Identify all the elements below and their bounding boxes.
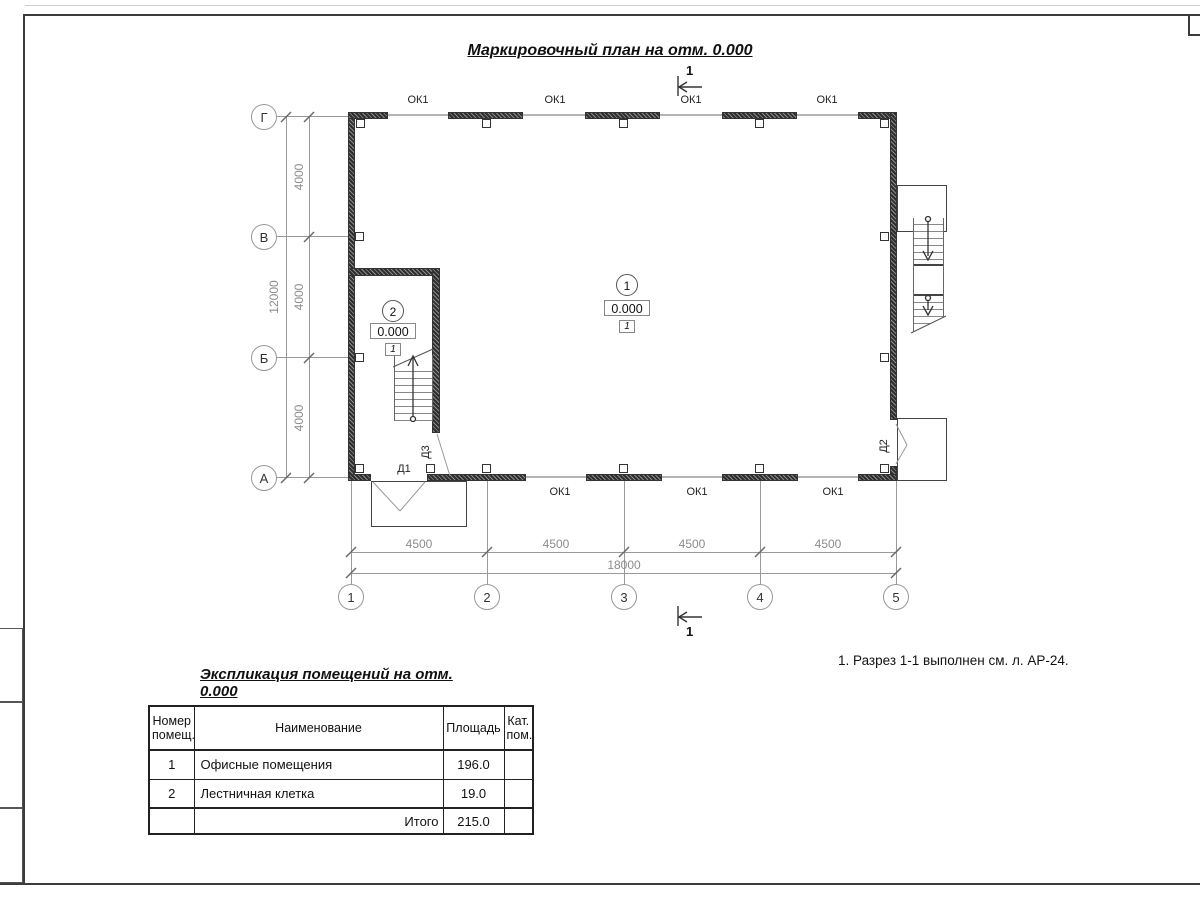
drawing-sheet: Маркировочный план на отм. 0.000 Г В Б А…: [0, 0, 1200, 900]
column-tab: [482, 464, 491, 473]
section-mark-number-top: 1: [686, 63, 693, 78]
room-area-cell: 196.0: [443, 750, 504, 779]
column-tab: [880, 232, 889, 241]
dim-line-12000: [286, 117, 287, 478]
frame-corner-box: [1188, 14, 1200, 36]
wall-bottom-pier-1: [348, 474, 371, 481]
frame-left-line: [23, 14, 25, 885]
axis-line-b: [277, 357, 348, 358]
column-tab: [619, 119, 628, 128]
dim-4500-3: 4500: [662, 537, 722, 551]
dim-line-4000: [309, 117, 310, 478]
dim-line-4500: [351, 552, 897, 553]
column-tab: [880, 464, 889, 473]
window-label-ok1: ОК1: [810, 94, 844, 106]
room-1-number: 1: [616, 274, 638, 296]
wall-top-pier-1: [348, 112, 388, 119]
exterior-stair-flight: [913, 218, 944, 332]
door-label-d1: Д1: [392, 463, 416, 475]
wall-right-upper: [890, 112, 897, 420]
dim-4500-1: 4500: [389, 537, 449, 551]
axis-bubble-5: 5: [883, 584, 909, 610]
axis-bubble-a: А: [251, 465, 277, 491]
stair-treads: [914, 218, 943, 264]
frame-bottom-line: [0, 883, 1200, 885]
axis-bubble-1: 1: [338, 584, 364, 610]
table-row: 2 Лестничная клетка 19.0: [149, 779, 533, 808]
dim-12000: 12000: [267, 267, 281, 327]
wall-top-pier-3: [585, 112, 660, 119]
stair-treads: [914, 296, 943, 330]
porch-right: [897, 418, 947, 481]
window-strip-bottom: [526, 476, 858, 478]
column-tab: [880, 119, 889, 128]
dim-4500-4: 4500: [798, 537, 858, 551]
room-cat-cell: [504, 750, 533, 779]
wall-top-pier-4: [722, 112, 797, 119]
column-tab: [355, 353, 364, 362]
door-swing-d3: [437, 434, 450, 476]
axis-bubble-g: Г: [251, 104, 277, 130]
dim-line-18000: [351, 573, 897, 574]
section-mark-bottom-arrow: [678, 606, 702, 626]
dim-18000: 18000: [594, 558, 654, 572]
axis-line-g: [277, 116, 348, 117]
column-tab: [355, 232, 364, 241]
room-2-number: 2: [382, 300, 404, 322]
table-total-row: Итого 215.0: [149, 808, 533, 834]
axis-vline-4: [760, 481, 761, 584]
total-label-cell: Итого: [194, 808, 443, 834]
dim-4000-2: 4000: [292, 267, 306, 327]
frame-side-box-2: [0, 702, 23, 808]
wall-bottom-pier-4: [722, 474, 798, 481]
dim-4000-1: 4000: [292, 147, 306, 207]
column-tab: [880, 353, 889, 362]
window-label-ok1: ОК1: [680, 486, 714, 498]
axis-bubble-v: В: [251, 224, 277, 250]
explication-table: Номер помещ. Наименование Площадь Кат. п…: [148, 705, 534, 835]
porch-bottom-left: [371, 481, 467, 527]
stair-landing-line: [914, 264, 943, 266]
axis-bubble-4: 4: [747, 584, 773, 610]
column-tab: [619, 464, 628, 473]
room-area-cell: 19.0: [443, 779, 504, 808]
wall-top-pier-2: [448, 112, 523, 119]
room-2-floor-type: 1: [385, 343, 401, 356]
door-label-d2: Д2: [878, 434, 890, 458]
room-1-elevation: 0.000: [604, 300, 650, 316]
interior-stair-flight: [394, 355, 433, 421]
room-1-floor-type: 1: [619, 320, 635, 333]
wall-bottom-pier-5: [858, 474, 897, 481]
door-label-d3: Д3: [420, 440, 432, 464]
frame-top-line: [23, 14, 1200, 16]
note-section-reference: 1. Разрез 1-1 выполнен см. л. АР-24.: [838, 653, 1069, 668]
room-name-cell: Лестничная клетка: [194, 779, 443, 808]
axis-vline-1: [351, 481, 352, 584]
column-tab: [355, 464, 364, 473]
column-tab: [755, 464, 764, 473]
column-tab: [426, 464, 435, 473]
column-tab: [356, 119, 365, 128]
table-header-cat: Кат. пом.: [504, 706, 533, 750]
room-name-cell: Офисные помещения: [194, 750, 443, 779]
table-title: Экспликация помещений на отм. 0.000: [200, 666, 480, 700]
paper-edge-line: [25, 5, 1200, 6]
table-row: 1 Офисные помещения 196.0: [149, 750, 533, 779]
room-cat-cell: [504, 779, 533, 808]
wall-partition-right: [432, 268, 440, 433]
stair-treads: [395, 365, 432, 421]
room-number-cell: 1: [149, 750, 194, 779]
column-tab: [755, 119, 764, 128]
total-area-cell: 215.0: [443, 808, 504, 834]
axis-bubble-3: 3: [611, 584, 637, 610]
window-label-ok1: ОК1: [401, 94, 435, 106]
axis-line-a: [277, 477, 348, 478]
wall-bottom-pier-3: [586, 474, 662, 481]
window-label-ok1: ОК1: [538, 94, 572, 106]
room-2-elevation: 0.000: [370, 323, 416, 339]
window-label-ok1: ОК1: [816, 486, 850, 498]
dim-4500-2: 4500: [526, 537, 586, 551]
axis-bubble-b: Б: [251, 345, 277, 371]
window-label-ok1: ОК1: [674, 94, 708, 106]
plan-title: Маркировочный план на отм. 0.000: [460, 42, 760, 60]
section-mark-number-bottom: 1: [686, 624, 693, 639]
window-label-ok1: ОК1: [543, 486, 577, 498]
axis-line-v: [277, 236, 348, 237]
wall-bottom-pier-2: [427, 474, 526, 481]
column-tab: [482, 119, 491, 128]
frame-side-box-1: [0, 628, 23, 702]
table-header-name: Наименование: [194, 706, 443, 750]
room-number-cell: 2: [149, 779, 194, 808]
axis-vline-5: [896, 481, 897, 584]
frame-side-box-3: [0, 808, 23, 883]
wall-left: [348, 112, 355, 481]
dim-4000-3: 4000: [292, 388, 306, 448]
axis-vline-2: [487, 481, 488, 584]
table-header-number: Номер помещ.: [149, 706, 194, 750]
table-header-area: Площадь: [443, 706, 504, 750]
axis-bubble-2: 2: [474, 584, 500, 610]
section-mark-top-arrow: [678, 76, 702, 96]
wall-partition-top: [348, 268, 440, 276]
